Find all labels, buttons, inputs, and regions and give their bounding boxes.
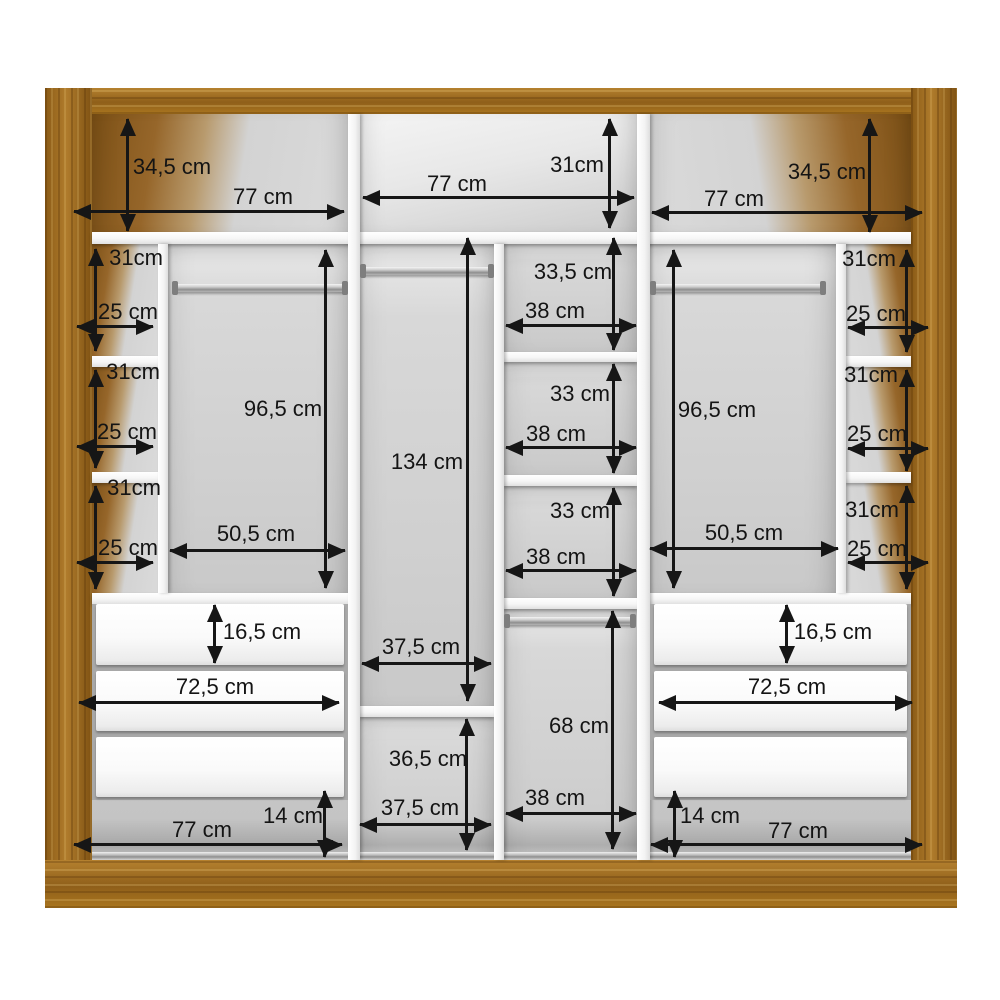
top-shelf <box>92 232 911 244</box>
dim-arrow-right-drawer-width <box>659 701 912 704</box>
wood-frame-top <box>45 88 957 114</box>
divider-left-of-middle <box>348 114 360 860</box>
dim-arrow-top-left-width <box>74 210 344 213</box>
dim-label: 31cm <box>842 248 896 270</box>
dim-label: 77 cm <box>233 186 293 208</box>
dim-label: 16,5 cm <box>223 621 301 643</box>
dim-label: 14 cm <box>263 805 323 827</box>
dim-arrow-right-cell1-width <box>848 326 928 329</box>
dim-label: 31cm <box>845 499 899 521</box>
dim-arrow-top-left-height <box>126 119 129 231</box>
dim-arrow-center-cell2-width <box>506 446 636 449</box>
dim-label: 14 cm <box>680 805 740 827</box>
center-shelf-2 <box>504 475 637 486</box>
center-shelf-1 <box>504 352 637 362</box>
dim-arrow-top-right-width <box>652 211 922 214</box>
dim-label: 72,5 cm <box>176 676 254 698</box>
dim-label: 34,5 cm <box>788 161 866 183</box>
dim-label: 37,5 cm <box>382 636 460 658</box>
dim-arrow-center-cell2-height <box>612 364 615 473</box>
dim-label: 31cm <box>550 154 604 176</box>
dim-label: 77 cm <box>427 173 487 195</box>
dim-label: 38 cm <box>526 423 586 445</box>
dim-label: 72,5 cm <box>748 676 826 698</box>
wood-frame-bottom <box>45 860 957 908</box>
dim-arrow-left-cell2-width <box>77 445 153 448</box>
wardrobe-dimension-diagram: 34,5 cm 77 cm 77 cm 31cm 34,5 cm 77 cm 3… <box>0 0 1000 1000</box>
center-shelf-3 <box>504 598 637 609</box>
right-hanging-rail <box>652 284 824 292</box>
dim-label: 25 cm <box>98 537 158 559</box>
dim-arrow-middle-tall-height <box>466 238 469 701</box>
dim-label: 37,5 cm <box>381 797 459 819</box>
left-inner-divider <box>158 244 168 593</box>
dim-arrow-center-hanging-width <box>506 812 636 815</box>
dim-label: 34,5 cm <box>133 156 211 178</box>
left-hanging-rail <box>174 284 346 292</box>
dim-arrow-center-cell1-width <box>506 324 636 327</box>
dim-arrow-right-drawer-height <box>785 605 788 663</box>
dim-arrow-left-cell3-height <box>94 486 97 589</box>
dim-arrow-left-hanging-height <box>324 250 327 588</box>
dim-arrow-right-cell3-width <box>848 561 928 564</box>
left-section-bottom-shelf <box>92 593 348 604</box>
left-drawer-3 <box>96 737 344 797</box>
dim-label: 96,5 cm <box>244 398 322 420</box>
dim-label: 16,5 cm <box>794 621 872 643</box>
dim-label: 50,5 cm <box>705 522 783 544</box>
dim-arrow-center-cell3-width <box>506 569 636 572</box>
dim-arrow-middle-tall-width <box>362 662 491 665</box>
dim-arrow-top-middle-width <box>363 196 634 199</box>
dim-arrow-left-cell1-height <box>94 249 97 351</box>
dim-arrow-right-hanging-width <box>650 547 838 550</box>
right-column-shelf-2 <box>846 472 911 483</box>
dim-arrow-middle-lower-height <box>465 719 468 850</box>
dim-label: 25 cm <box>847 538 907 560</box>
dim-arrow-top-middle-height <box>608 119 611 228</box>
dim-arrow-left-hanging-width <box>170 549 345 552</box>
dim-label: 25 cm <box>847 423 907 445</box>
dim-arrow-left-cell1-width <box>77 325 153 328</box>
dim-arrow-right-base-width <box>651 843 922 846</box>
dim-label: 33,5 cm <box>534 261 612 283</box>
right-drawer-3 <box>654 737 907 797</box>
dim-label: 31cm <box>109 247 163 269</box>
right-section-bottom-shelf <box>650 593 911 604</box>
dim-label: 77 cm <box>704 188 764 210</box>
dim-label: 31cm <box>106 361 160 383</box>
dim-label: 25 cm <box>97 421 157 443</box>
dim-label: 68 cm <box>549 715 609 737</box>
dim-label: 31cm <box>844 364 898 386</box>
dim-label: 33 cm <box>550 500 610 522</box>
dim-arrow-left-cell3-width <box>77 561 153 564</box>
dim-label: 96,5 cm <box>678 399 756 421</box>
dim-arrow-center-cell1-height <box>612 238 615 350</box>
divider-right-of-middle <box>494 244 504 860</box>
dim-arrow-right-cell2-width <box>848 447 928 450</box>
dim-arrow-center-cell3-height <box>612 488 615 596</box>
dim-label: 77 cm <box>768 820 828 842</box>
dim-label: 38 cm <box>525 300 585 322</box>
divider-left-of-right-section <box>637 114 650 860</box>
dim-label: 31cm <box>107 477 161 499</box>
dim-label: 25 cm <box>846 303 906 325</box>
dim-label: 38 cm <box>525 787 585 809</box>
middle-hanging-rail <box>362 267 492 275</box>
dim-label: 134 cm <box>391 451 463 473</box>
dim-arrow-left-drawer-width <box>79 701 339 704</box>
dim-label: 50,5 cm <box>217 523 295 545</box>
middle-column-shelf <box>360 706 494 717</box>
dim-arrow-left-base-width <box>74 843 342 846</box>
dim-arrow-right-hanging-height <box>672 250 675 588</box>
dim-label: 33 cm <box>550 383 610 405</box>
dim-arrow-left-drawer-height <box>213 605 216 663</box>
dim-arrow-right-base-height <box>673 791 676 857</box>
dim-arrow-middle-lower-width <box>360 823 491 826</box>
dim-label: 36,5 cm <box>389 748 467 770</box>
dim-label: 77 cm <box>172 819 232 841</box>
dim-label: 25 cm <box>98 301 158 323</box>
dim-arrow-top-right-height <box>868 119 871 232</box>
dim-label: 38 cm <box>526 546 586 568</box>
